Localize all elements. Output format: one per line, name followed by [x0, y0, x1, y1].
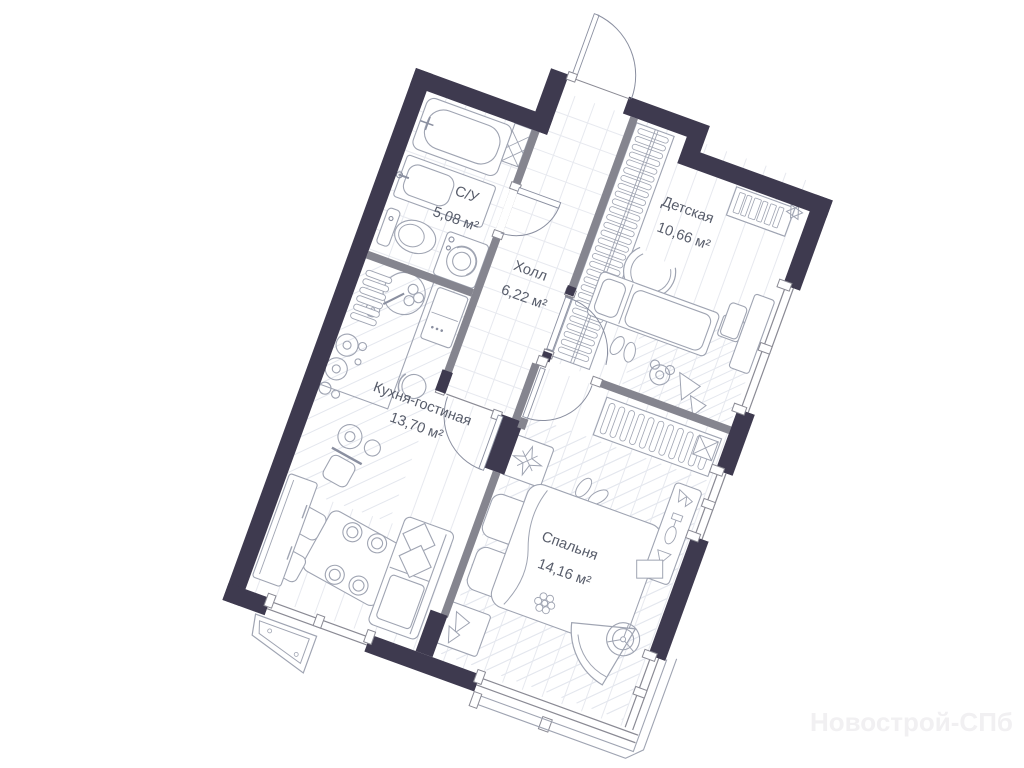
svg-text:Новострой-СПб: Новострой-СПб	[810, 707, 1013, 737]
